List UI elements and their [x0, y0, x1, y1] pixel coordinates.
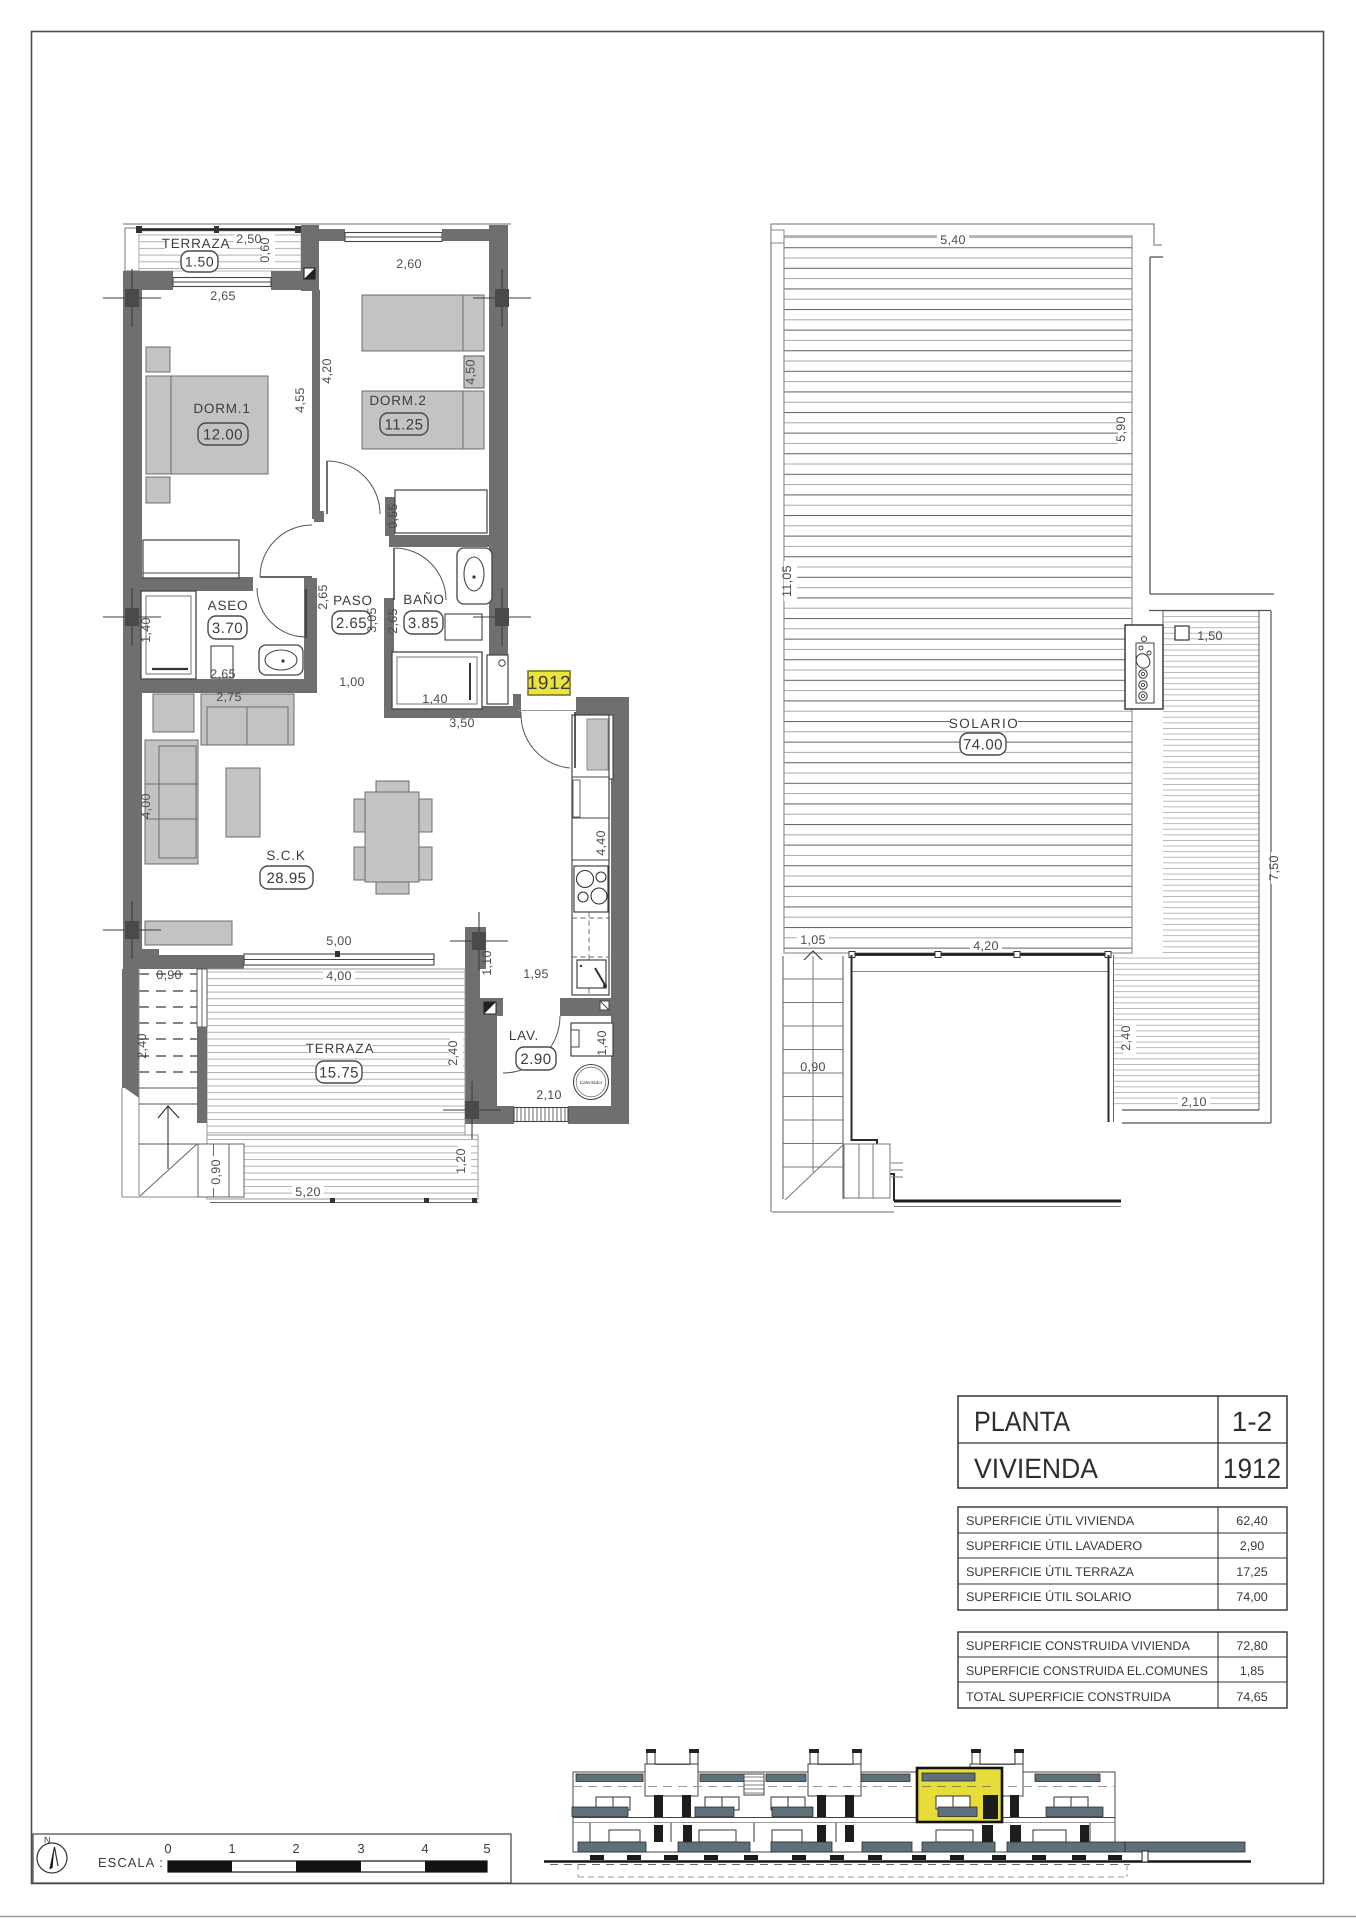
svg-text:4,20: 4,20 [973, 939, 999, 953]
svg-text:SOLARIO: SOLARIO [949, 716, 1020, 731]
svg-text:4,55: 4,55 [293, 387, 307, 413]
svg-text:12.00: 12.00 [203, 426, 243, 443]
svg-text:4,20: 4,20 [320, 358, 334, 384]
svg-text:7,50: 7,50 [1267, 855, 1281, 881]
svg-text:2.65: 2.65 [336, 615, 367, 632]
svg-text:Calentador: Calentador [580, 1080, 603, 1085]
svg-text:3,50: 3,50 [449, 716, 475, 730]
svg-text:VIVIENDA: VIVIENDA [974, 1453, 1098, 1484]
svg-text:PLANTA: PLANTA [974, 1406, 1070, 1437]
svg-text:74.00: 74.00 [963, 736, 1003, 753]
svg-text:5,40: 5,40 [940, 233, 966, 247]
svg-text:2,65: 2,65 [316, 584, 330, 610]
svg-text:DORM.2: DORM.2 [369, 393, 426, 408]
svg-text:1,40: 1,40 [422, 692, 448, 706]
svg-text:28.95: 28.95 [266, 870, 306, 887]
svg-text:11.25: 11.25 [385, 416, 424, 433]
svg-text:0,60: 0,60 [258, 237, 272, 263]
svg-text:SUPERFICIE ÚTIL VIVIENDA: SUPERFICIE ÚTIL VIVIENDA [966, 1514, 1135, 1528]
svg-text:3.85: 3.85 [408, 615, 439, 632]
svg-text:TOTAL SUPERFICIE CONSTRUIDA: TOTAL SUPERFICIE CONSTRUIDA [966, 1690, 1171, 1704]
svg-text:1912: 1912 [1223, 1453, 1281, 1484]
svg-text:1,50: 1,50 [1197, 629, 1223, 643]
svg-text:3.70: 3.70 [212, 620, 243, 637]
svg-text:1,40: 1,40 [595, 1030, 609, 1056]
svg-text:2,90: 2,90 [1240, 1539, 1265, 1553]
svg-text:2,40: 2,40 [446, 1040, 460, 1066]
svg-text:4,50: 4,50 [464, 359, 478, 385]
svg-text:1,00: 1,00 [339, 675, 365, 689]
svg-text:2,10: 2,10 [1181, 1095, 1207, 1109]
svg-text:SUPERFICIE CONSTRUIDA EL.COMUN: SUPERFICIE CONSTRUIDA EL.COMUNES [966, 1664, 1208, 1678]
svg-text:2,65: 2,65 [386, 608, 400, 634]
svg-text:15.75: 15.75 [319, 1064, 359, 1081]
svg-text:2,60: 2,60 [396, 257, 422, 271]
svg-text:1,20: 1,20 [454, 1148, 468, 1174]
svg-text:1,40: 1,40 [139, 617, 153, 643]
svg-text:1,10: 1,10 [480, 950, 494, 976]
svg-text:2,40: 2,40 [135, 1033, 149, 1059]
svg-text:5: 5 [483, 1841, 490, 1856]
svg-text:4,00: 4,00 [326, 969, 352, 983]
svg-text:1,85: 1,85 [1240, 1664, 1265, 1678]
svg-text:ESCALA :: ESCALA : [98, 1855, 164, 1870]
svg-text:72,80: 72,80 [1236, 1639, 1268, 1653]
svg-text:4: 4 [421, 1841, 428, 1856]
svg-text:5,90: 5,90 [1114, 416, 1128, 442]
svg-text:PASO: PASO [333, 593, 373, 608]
svg-text:4,40: 4,40 [594, 830, 608, 856]
svg-text:11,05: 11,05 [780, 565, 794, 597]
svg-text:LAV.: LAV. [509, 1028, 539, 1043]
svg-text:5,20: 5,20 [295, 1185, 321, 1199]
svg-text:SUPERFICIE CONSTRUIDA VIVIENDA: SUPERFICIE CONSTRUIDA VIVIENDA [966, 1639, 1191, 1653]
svg-text:1912: 1912 [527, 673, 571, 694]
svg-text:62,40: 62,40 [1236, 1514, 1268, 1528]
svg-text:N: N [44, 1835, 51, 1845]
svg-text:0,90: 0,90 [209, 1159, 223, 1185]
svg-text:74,65: 74,65 [1236, 1690, 1268, 1704]
svg-text:2: 2 [292, 1841, 299, 1856]
svg-text:2,40: 2,40 [1119, 1025, 1133, 1051]
svg-text:0,55: 0,55 [386, 503, 400, 529]
svg-text:1,95: 1,95 [523, 967, 549, 981]
svg-text:TERRAZA: TERRAZA [306, 1041, 375, 1056]
svg-text:BAÑO: BAÑO [403, 592, 444, 607]
svg-text:2,65: 2,65 [210, 667, 236, 681]
svg-text:4,00: 4,00 [139, 793, 153, 819]
svg-text:SUPERFICIE ÚTIL LAVADERO: SUPERFICIE ÚTIL LAVADERO [966, 1539, 1142, 1553]
svg-text:3,05: 3,05 [365, 607, 379, 633]
svg-text:17,25: 17,25 [1236, 1565, 1268, 1579]
svg-text:DORM.1: DORM.1 [193, 401, 250, 416]
svg-text:1-2: 1-2 [1232, 1406, 1272, 1437]
svg-text:TERRAZA: TERRAZA [162, 236, 231, 251]
svg-text:0,90: 0,90 [800, 1060, 826, 1074]
svg-text:S.C.K: S.C.K [266, 848, 305, 863]
svg-text:2,75: 2,75 [216, 690, 242, 704]
svg-text:ASEO: ASEO [208, 598, 249, 613]
svg-text:SUPERFICIE ÚTIL SOLARIO: SUPERFICIE ÚTIL SOLARIO [966, 1590, 1132, 1604]
svg-text:3: 3 [357, 1841, 364, 1856]
svg-text:1,05: 1,05 [800, 933, 826, 947]
svg-text:2,10: 2,10 [536, 1088, 562, 1102]
svg-text:SUPERFICIE ÚTIL TERRAZA: SUPERFICIE ÚTIL TERRAZA [966, 1565, 1135, 1579]
svg-text:0: 0 [164, 1841, 171, 1856]
svg-text:1.50: 1.50 [185, 254, 214, 270]
svg-text:2,65: 2,65 [210, 289, 236, 303]
svg-text:1: 1 [228, 1841, 235, 1856]
svg-text:5,00: 5,00 [326, 934, 352, 948]
svg-text:0,90: 0,90 [156, 968, 182, 982]
svg-text:2.90: 2.90 [520, 1051, 551, 1068]
svg-text:74,00: 74,00 [1236, 1590, 1268, 1604]
